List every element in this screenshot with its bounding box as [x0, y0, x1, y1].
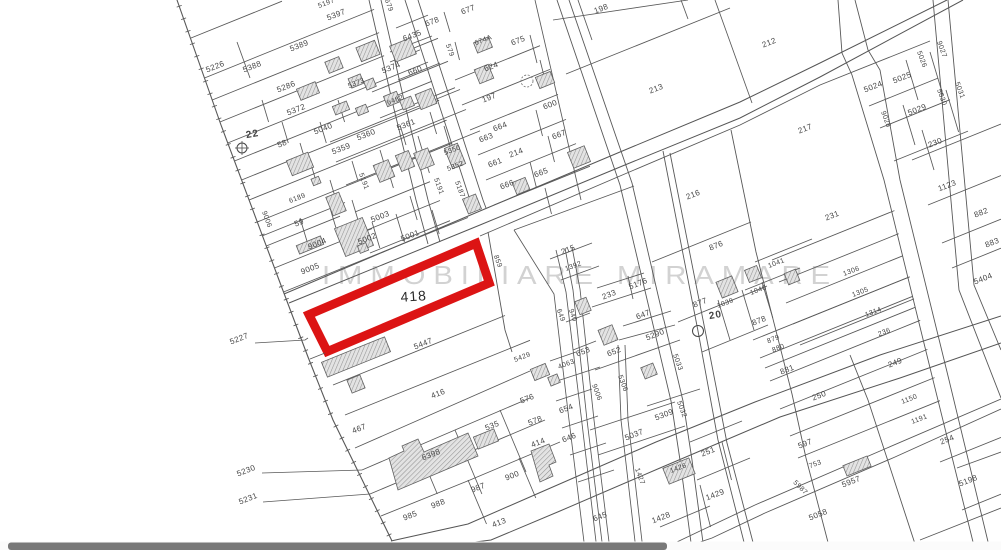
svg-text:22: 22	[245, 128, 260, 141]
svg-text:418: 418	[400, 287, 427, 305]
svg-text:20: 20	[708, 309, 723, 322]
